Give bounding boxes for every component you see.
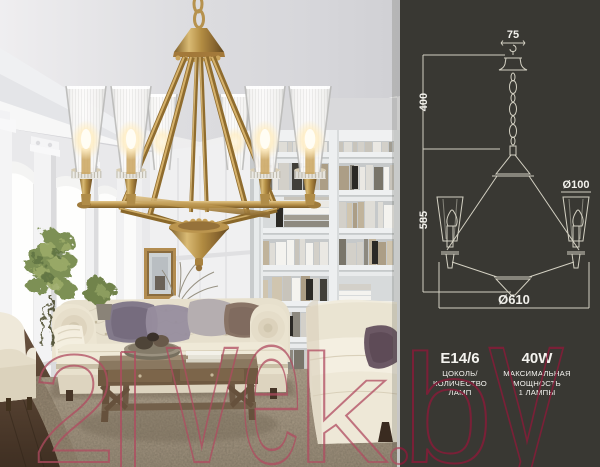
svg-text:e: e <box>240 268 302 467</box>
svg-text:y: y <box>489 268 564 467</box>
svg-text:v: v <box>166 267 238 467</box>
svg-text:2: 2 <box>31 323 117 467</box>
svg-text:k: k <box>296 323 388 467</box>
svg-text:b: b <box>402 322 493 467</box>
